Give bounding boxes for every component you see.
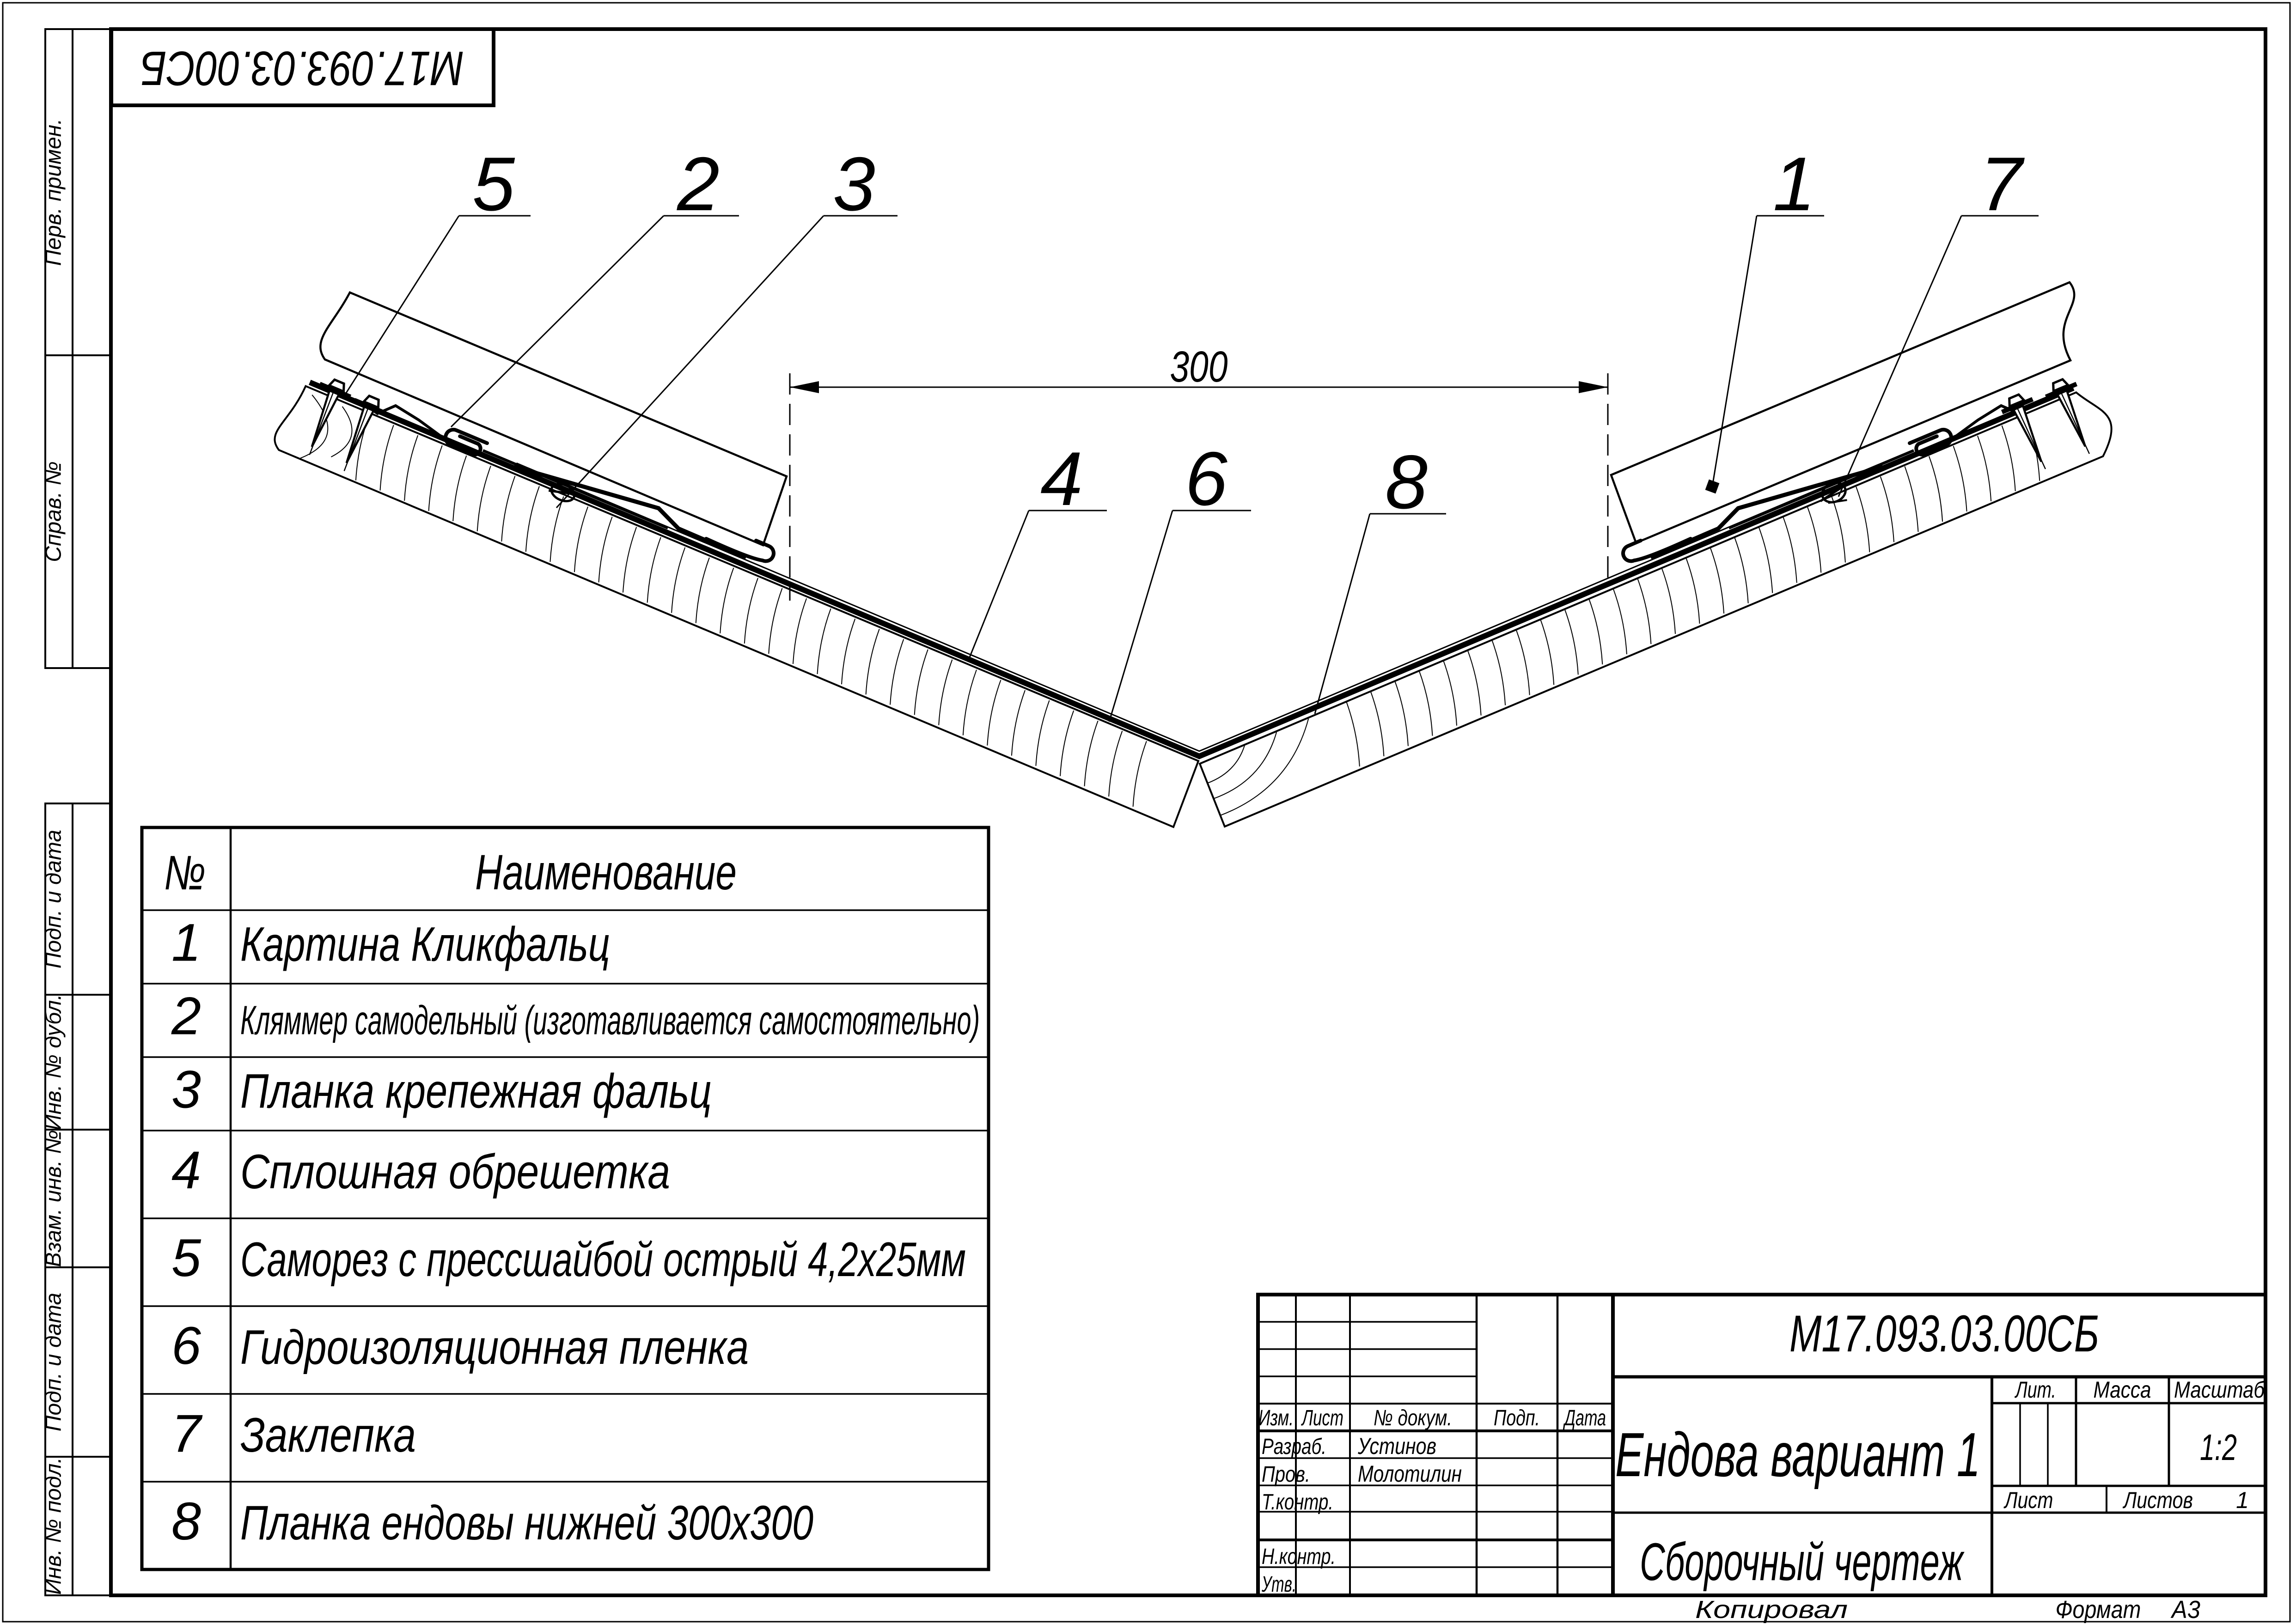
svg-text:Заклепка: Заклепка bbox=[240, 1408, 416, 1462]
svg-text:6: 6 bbox=[1185, 436, 1227, 521]
svg-text:М17.093.03.00СБ: М17.093.03.00СБ bbox=[140, 41, 464, 95]
svg-text:№: № bbox=[164, 846, 206, 900]
svg-text:Изм.: Изм. bbox=[1258, 1406, 1294, 1430]
svg-text:300: 300 bbox=[1170, 342, 1228, 391]
svg-text:Разраб.: Разраб. bbox=[1262, 1435, 1326, 1459]
svg-text:А3: А3 bbox=[2170, 1596, 2200, 1624]
svg-text:Копировал: Копировал bbox=[1695, 1596, 1848, 1624]
svg-text:Справ. №: Справ. № bbox=[42, 461, 66, 562]
svg-text:Масса: Масса bbox=[2094, 1377, 2151, 1403]
svg-text:Т.контр.: Т.контр. bbox=[1262, 1490, 1333, 1515]
svg-text:Подп. и дата: Подп. и дата bbox=[42, 830, 66, 969]
svg-text:Н.контр.: Н.контр. bbox=[1262, 1545, 1336, 1569]
svg-text:Планка крепежная фальц: Планка крепежная фальц bbox=[240, 1064, 712, 1119]
svg-text:Саморез с прессшайбой острый 4: Саморез с прессшайбой острый 4,2х25мм bbox=[240, 1233, 966, 1287]
svg-text:Наименование: Наименование bbox=[475, 844, 737, 900]
svg-text:Формат: Формат bbox=[2056, 1596, 2141, 1624]
svg-text:Утв.: Утв. bbox=[1261, 1572, 1296, 1597]
svg-text:3: 3 bbox=[171, 1060, 201, 1119]
svg-text:Планка ендовы нижней 300х300: Планка ендовы нижней 300х300 bbox=[240, 1496, 813, 1550]
svg-text:Молотилин: Молотилин bbox=[1358, 1461, 1462, 1487]
svg-text:Подп. и дата: Подп. и дата bbox=[42, 1293, 66, 1432]
svg-text:Взам. инв. №: Взам. инв. № bbox=[42, 1130, 66, 1267]
svg-text:Кляммер самодельный (изготавли: Кляммер самодельный (изготавливается сам… bbox=[240, 998, 980, 1043]
svg-text:3: 3 bbox=[833, 141, 875, 226]
svg-text:Гидроизоляционная пленка: Гидроизоляционная пленка bbox=[240, 1320, 749, 1375]
svg-text:6: 6 bbox=[171, 1316, 201, 1375]
svg-text:Масштаб: Масштаб bbox=[2174, 1377, 2265, 1403]
svg-text:Подп.: Подп. bbox=[1494, 1406, 1540, 1430]
svg-text:1:2: 1:2 bbox=[2200, 1427, 2237, 1468]
svg-text:Сплошная обрешетка: Сплошная обрешетка bbox=[240, 1145, 670, 1199]
svg-text:8: 8 bbox=[1385, 439, 1428, 524]
svg-text:1: 1 bbox=[1773, 141, 1815, 226]
svg-text:1: 1 bbox=[2236, 1487, 2249, 1513]
svg-text:2: 2 bbox=[677, 141, 720, 226]
svg-text:Перв. примен.: Перв. примен. bbox=[42, 118, 66, 266]
svg-text:Ендова вариант 1: Ендова вариант 1 bbox=[1615, 1420, 1980, 1490]
svg-text:Лист: Лист bbox=[1301, 1406, 1343, 1430]
svg-text:Лит.: Лит. bbox=[2015, 1377, 2056, 1403]
svg-text:5: 5 bbox=[472, 141, 515, 226]
svg-text:8: 8 bbox=[171, 1492, 201, 1551]
svg-text:Дата: Дата bbox=[1563, 1406, 1606, 1430]
svg-text:Инв. № дубл.: Инв. № дубл. bbox=[42, 994, 66, 1130]
svg-text:Пров.: Пров. bbox=[1262, 1462, 1310, 1487]
svg-text:2: 2 bbox=[171, 987, 201, 1046]
svg-text:Листов: Листов bbox=[2123, 1487, 2193, 1513]
svg-text:Лист: Лист bbox=[2003, 1487, 2053, 1513]
svg-text:7: 7 bbox=[171, 1404, 203, 1463]
svg-text:4: 4 bbox=[1040, 436, 1083, 521]
svg-text:Картина Кликфальц: Картина Кликфальц bbox=[240, 918, 610, 972]
svg-text:М17.093.03.00СБ: М17.093.03.00СБ bbox=[1789, 1305, 2099, 1362]
svg-text:7: 7 bbox=[1980, 141, 2025, 226]
svg-text:Устинов: Устинов bbox=[1357, 1433, 1436, 1459]
svg-text:Инв. № подл.: Инв. № подл. bbox=[42, 1457, 66, 1595]
svg-text:№ докум.: № докум. bbox=[1374, 1406, 1452, 1430]
svg-text:1: 1 bbox=[171, 913, 201, 973]
svg-text:5: 5 bbox=[171, 1229, 202, 1288]
svg-text:Сборочный чертеж: Сборочный чертеж bbox=[1640, 1533, 1965, 1592]
svg-text:4: 4 bbox=[171, 1141, 201, 1200]
